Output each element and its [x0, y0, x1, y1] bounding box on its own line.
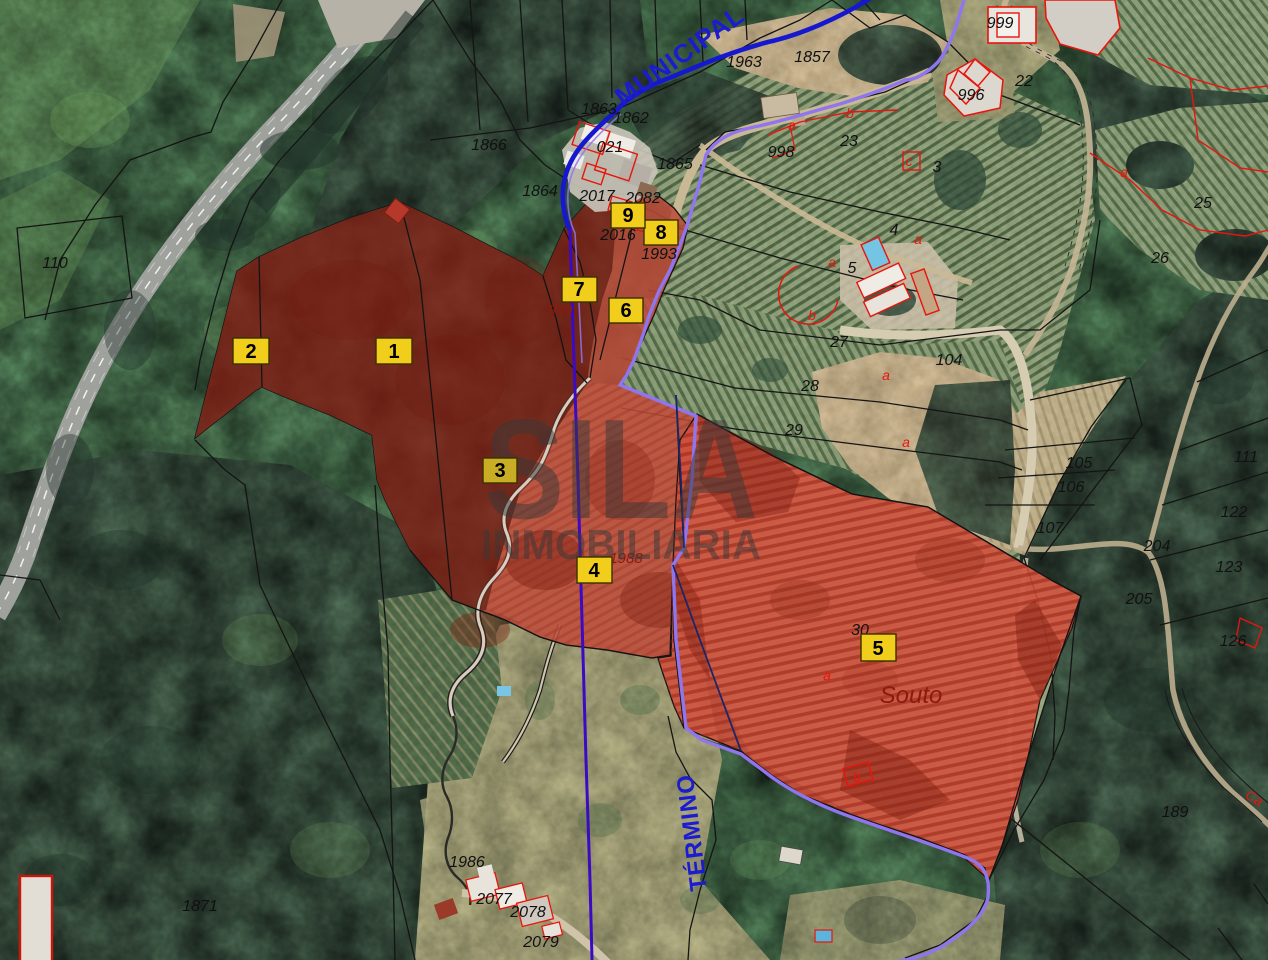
svg-text:1857: 1857 — [794, 49, 831, 66]
svg-text:a: a — [882, 367, 890, 383]
svg-text:28: 28 — [800, 378, 819, 395]
svg-text:5: 5 — [872, 638, 883, 660]
svg-text:c: c — [906, 153, 913, 169]
svg-text:3: 3 — [494, 460, 505, 482]
svg-text:1862: 1862 — [613, 110, 649, 127]
svg-text:27: 27 — [829, 334, 849, 351]
svg-text:2017: 2017 — [578, 188, 616, 205]
svg-text:204: 204 — [1143, 538, 1171, 555]
svg-text:1: 1 — [388, 341, 399, 363]
svg-text:1864: 1864 — [522, 183, 558, 200]
svg-text:105: 105 — [1066, 455, 1093, 472]
svg-text:4: 4 — [890, 222, 899, 239]
svg-text:107: 107 — [1037, 520, 1065, 537]
svg-text:106: 106 — [1058, 479, 1085, 496]
svg-text:1871: 1871 — [182, 898, 218, 915]
svg-text:4: 4 — [588, 560, 600, 582]
svg-text:2016: 2016 — [599, 227, 636, 244]
svg-text:1986: 1986 — [449, 854, 485, 871]
svg-text:104: 104 — [936, 352, 963, 369]
svg-text:a: a — [828, 254, 836, 270]
svg-text:Souto: Souto — [880, 682, 943, 709]
svg-text:a: a — [902, 434, 910, 450]
svg-text:b: b — [846, 105, 854, 121]
svg-text:126: 126 — [1220, 633, 1247, 650]
svg-text:189: 189 — [1162, 804, 1189, 821]
svg-text:205: 205 — [1125, 591, 1153, 608]
svg-text:b: b — [808, 307, 816, 323]
svg-text:999: 999 — [987, 15, 1014, 32]
svg-text:1963: 1963 — [726, 54, 762, 71]
svg-text:22: 22 — [1014, 73, 1033, 90]
svg-text:1863: 1863 — [581, 101, 617, 118]
svg-text:a: a — [823, 667, 831, 683]
svg-text:2077: 2077 — [475, 891, 513, 908]
svg-text:021: 021 — [597, 139, 624, 156]
svg-text:1865: 1865 — [657, 156, 693, 173]
svg-text:123: 123 — [1216, 559, 1243, 576]
svg-text:1866: 1866 — [471, 137, 507, 154]
svg-text:999: 999 — [547, 302, 573, 319]
svg-text:25: 25 — [1193, 195, 1212, 212]
svg-text:6: 6 — [620, 300, 631, 322]
svg-text:9: 9 — [622, 205, 633, 227]
svg-text:26: 26 — [1150, 250, 1169, 267]
svg-text:2079: 2079 — [522, 934, 559, 951]
svg-text:a: a — [1120, 164, 1128, 180]
svg-text:INMOBILIARIA: INMOBILIARIA — [481, 521, 761, 568]
svg-text:a: a — [788, 117, 796, 133]
svg-text:2078: 2078 — [509, 904, 546, 921]
svg-text:7: 7 — [573, 279, 584, 301]
svg-text:122: 122 — [1221, 504, 1248, 521]
svg-text:1993: 1993 — [641, 246, 677, 263]
svg-text:b: b — [853, 769, 861, 785]
svg-text:2: 2 — [245, 341, 256, 363]
svg-text:23: 23 — [839, 133, 858, 150]
svg-text:998: 998 — [768, 144, 795, 161]
svg-text:a: a — [914, 231, 922, 247]
svg-text:3: 3 — [933, 159, 942, 176]
svg-text:29: 29 — [784, 422, 803, 439]
svg-text:8: 8 — [655, 222, 666, 244]
svg-text:111: 111 — [1234, 449, 1258, 466]
svg-text:5: 5 — [848, 260, 857, 277]
svg-text:996: 996 — [958, 87, 985, 104]
svg-text:110: 110 — [42, 255, 68, 272]
